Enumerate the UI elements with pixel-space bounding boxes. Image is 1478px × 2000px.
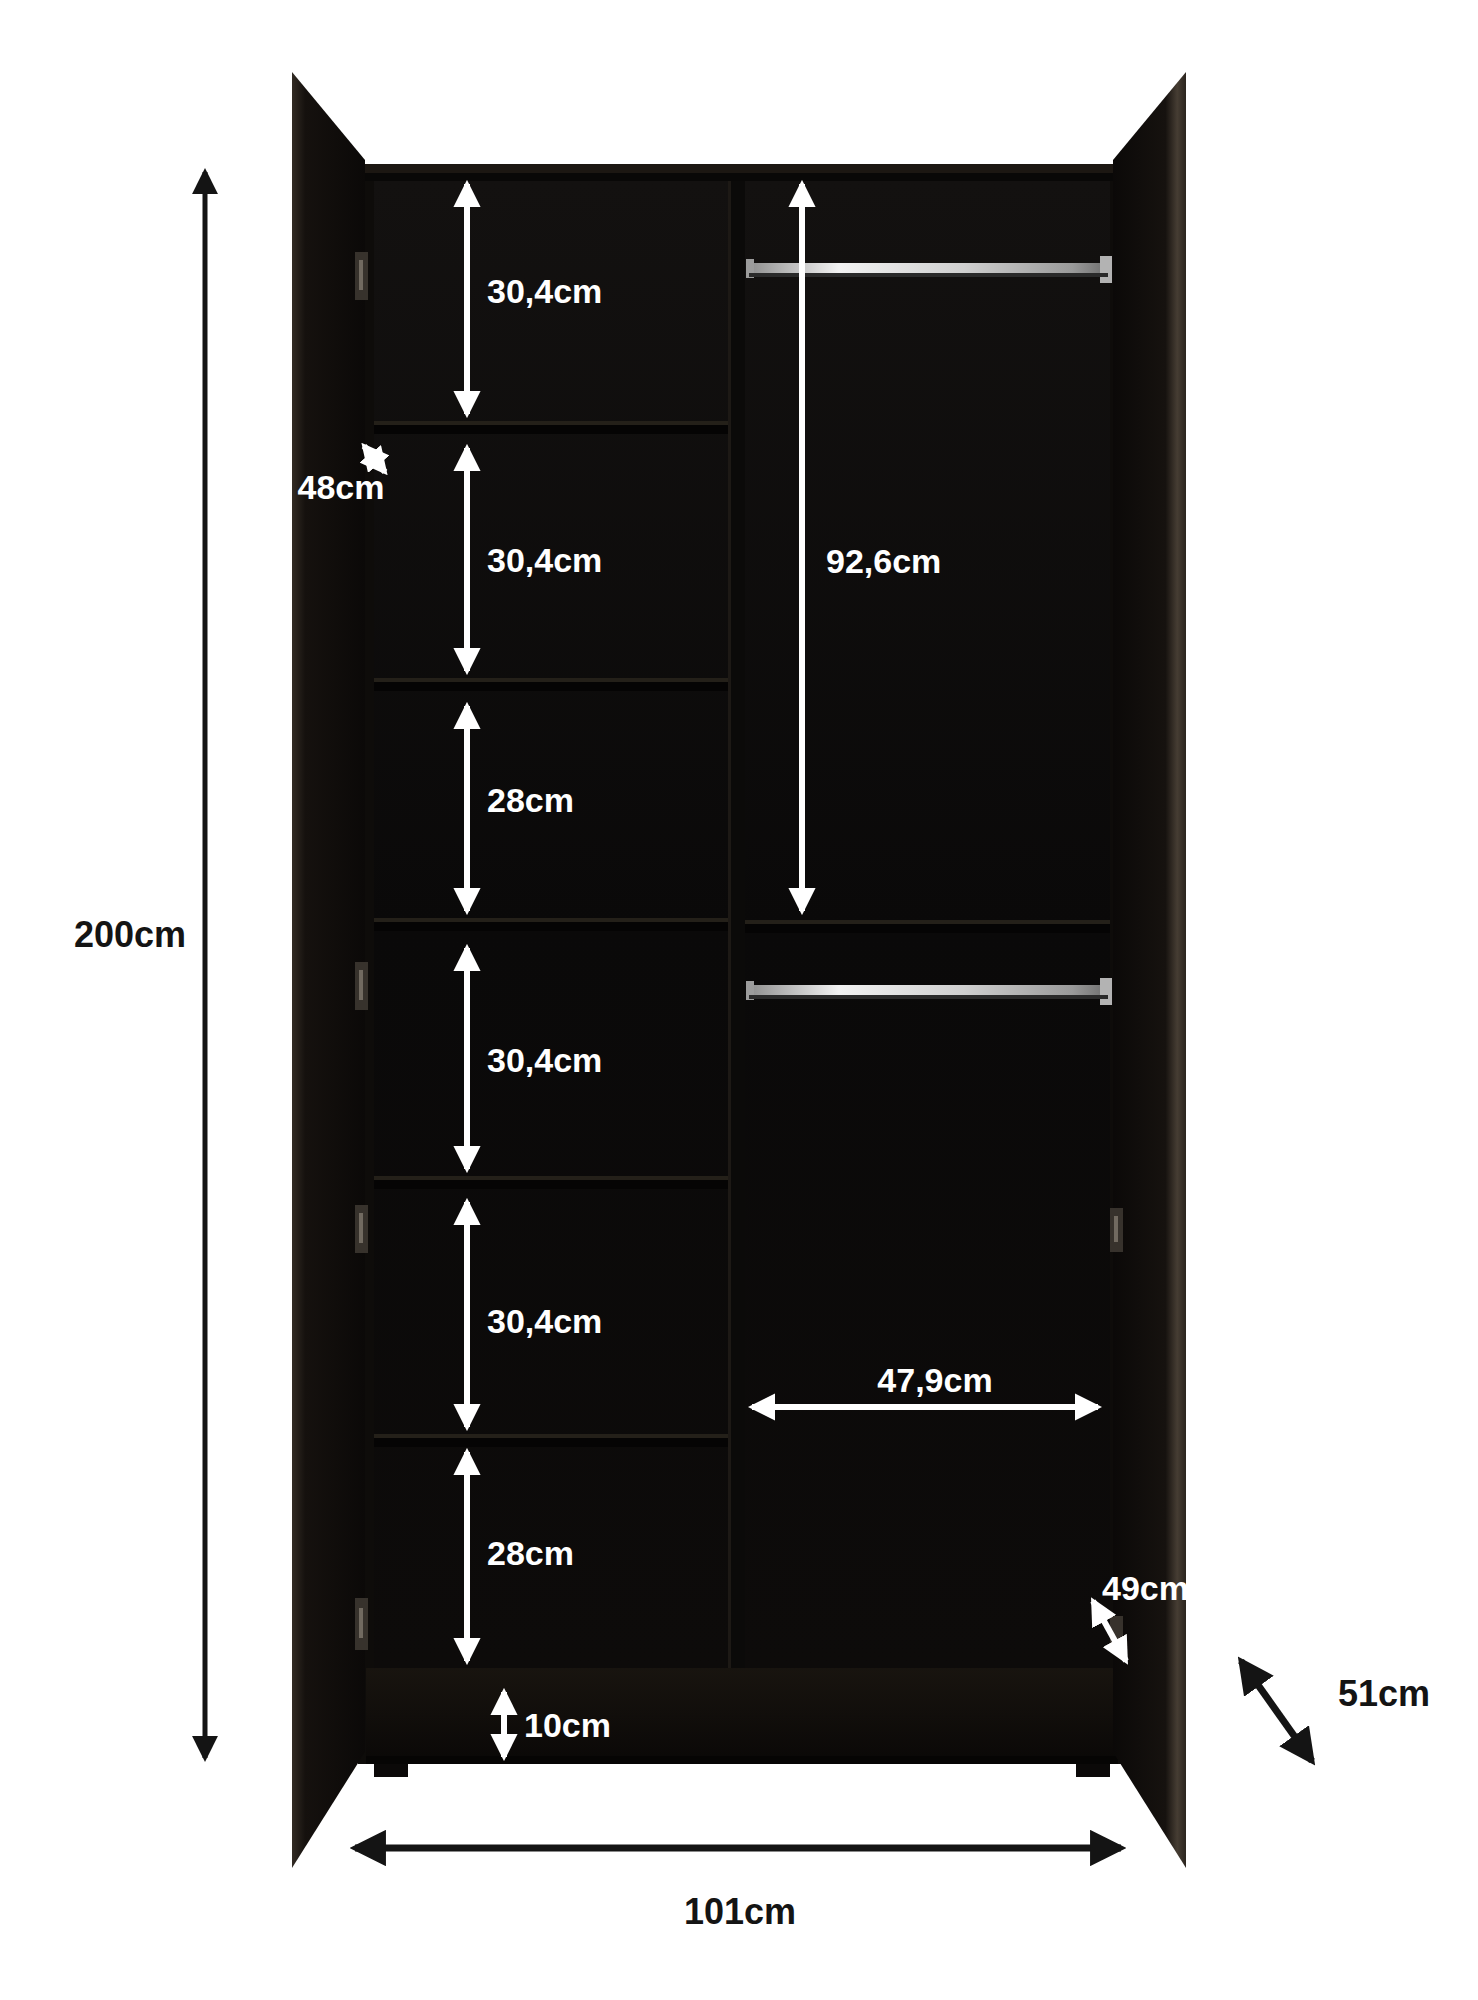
dim-label-section-1: 30,4cm [487, 272, 602, 310]
shelf [374, 922, 728, 931]
dim-label-hanging-height: 92,6cm [826, 542, 941, 580]
hinge-highlight [359, 260, 363, 290]
shelf [374, 682, 728, 691]
dim-arrow-external-depth [1241, 1661, 1312, 1761]
left-door [292, 72, 365, 1868]
hinge-highlight [359, 1608, 363, 1638]
dim-label-plinth: 10cm [524, 1706, 611, 1744]
dim-label-section-3: 28cm [487, 781, 574, 819]
dim-label-hanging-width: 47,9cm [877, 1361, 992, 1399]
dim-label-section-5: 30,4cm [487, 1302, 602, 1340]
foot-left [374, 1764, 408, 1777]
shelf [374, 1438, 728, 1447]
dim-label-external-depth: 51cm [1338, 1673, 1430, 1714]
hinge-highlight [1114, 1216, 1118, 1242]
right-divider-top-edge [745, 920, 1110, 924]
right-divider-shelf [745, 924, 1110, 933]
dim-label-internal-depth: 49cm [1102, 1569, 1189, 1607]
shelf [374, 1180, 728, 1189]
dim-label-section-6: 28cm [487, 1534, 574, 1572]
center-divider-edge [728, 181, 731, 1668]
dim-label-section-4: 30,4cm [487, 1041, 602, 1079]
diagram-canvas: 30,4cm 30,4cm 28cm 30,4cm 30,4cm 28cm 10… [0, 0, 1478, 2000]
shelf-top-edge [374, 1176, 728, 1180]
plinth-bottom-edge [366, 1756, 1118, 1764]
rail-shadow [749, 995, 1108, 999]
cabinet-top-shadow [358, 173, 1126, 181]
dim-label-shelf-depth: 48cm [298, 468, 385, 506]
dim-label-total-width: 101cm [684, 1891, 796, 1932]
shelf-top-edge [374, 421, 728, 425]
foot-right [1076, 1764, 1110, 1777]
shelf [374, 425, 728, 434]
shelf-top-edge [374, 678, 728, 682]
wardrobe-diagram: 30,4cm 30,4cm 28cm 30,4cm 30,4cm 28cm 10… [0, 0, 1478, 2000]
rail-bar [749, 985, 1108, 995]
dim-label-section-2: 30,4cm [487, 541, 602, 579]
rail-bracket-right [1100, 256, 1112, 283]
cabinet-top-panel [358, 164, 1126, 173]
plinth [366, 1668, 1118, 1764]
shelf-top-edge [374, 1434, 728, 1438]
rail-bracket-right [1100, 978, 1112, 1005]
hinge-highlight [359, 970, 363, 1000]
hinge-highlight [359, 1213, 363, 1243]
shelf-top-edge [374, 918, 728, 922]
dim-label-total-height: 200cm [74, 914, 186, 955]
